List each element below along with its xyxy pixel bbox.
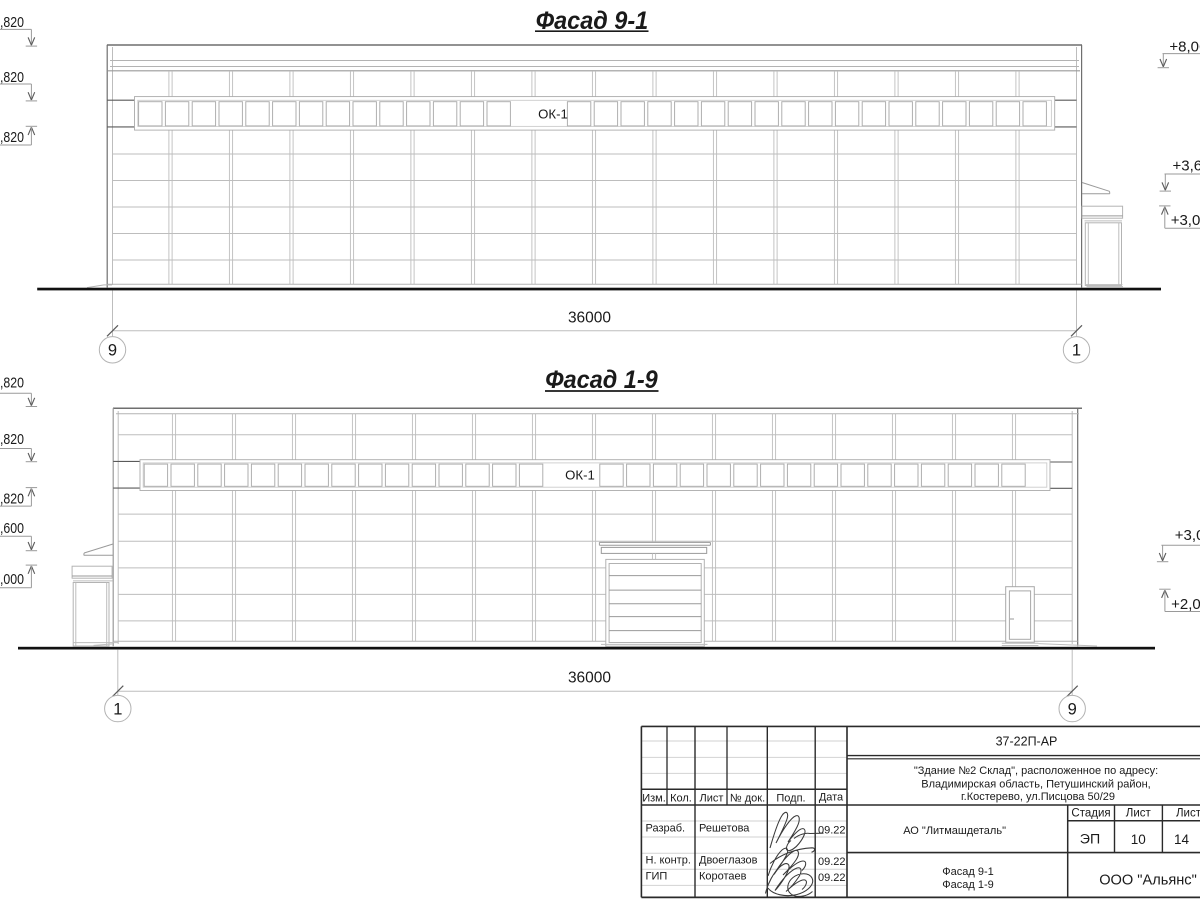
svg-text:Коротаев: Коротаев	[699, 870, 747, 882]
svg-text:Изм.: Изм.	[642, 793, 666, 805]
svg-text:"Здание №2 Склад", расположенн: "Здание №2 Склад", расположенное по адре…	[914, 765, 1158, 777]
svg-text:ОК-1: ОК-1	[565, 468, 595, 483]
svg-text:ГИП: ГИП	[646, 870, 668, 882]
svg-text:,820: ,820	[0, 375, 24, 392]
svg-text:ОК-1: ОК-1	[538, 106, 568, 121]
svg-text:Листов: Листов	[1176, 808, 1200, 820]
svg-text:Фасад 9-1: Фасад 9-1	[942, 866, 993, 878]
svg-text:Н. контр.: Н. контр.	[646, 855, 691, 867]
svg-text:ЭП: ЭП	[1080, 831, 1100, 847]
svg-text:Дата: Дата	[819, 792, 844, 804]
svg-text:37-22П-АР: 37-22П-АР	[996, 734, 1058, 748]
svg-text:Разраб.: Разраб.	[646, 823, 686, 835]
svg-text:36000: 36000	[568, 310, 611, 327]
svg-text:9: 9	[1068, 700, 1077, 718]
svg-text:Стадия: Стадия	[1071, 808, 1110, 820]
svg-text:Фасад 1-9: Фасад 1-9	[545, 366, 658, 394]
svg-text:9: 9	[108, 342, 117, 360]
svg-text:Подп.: Подп.	[776, 793, 805, 805]
svg-text:09.22: 09.22	[818, 872, 846, 884]
svg-text:Двоеглазов: Двоеглазов	[699, 855, 758, 867]
svg-text:Кол.: Кол.	[670, 793, 692, 805]
svg-text:№ док.: № док.	[730, 793, 765, 805]
svg-text:Решетова: Решетова	[699, 823, 750, 835]
svg-text:,820: ,820	[0, 14, 24, 31]
svg-text:Владимирская область, Петушинс: Владимирская область, Петушинский район,	[921, 779, 1150, 791]
svg-text:1: 1	[113, 700, 122, 718]
svg-text:Фасад 1-9: Фасад 1-9	[942, 879, 993, 891]
svg-text:Лист: Лист	[1126, 808, 1152, 820]
svg-text:14: 14	[1174, 832, 1190, 847]
svg-text:36000: 36000	[568, 669, 611, 686]
svg-text:,820: ,820	[0, 69, 24, 86]
svg-text:09.22: 09.22	[818, 825, 846, 837]
svg-text:09.22: 09.22	[818, 856, 846, 868]
svg-text:+2,00: +2,00	[1171, 596, 1200, 613]
svg-text:+3,0: +3,0	[1175, 527, 1200, 544]
svg-text:10: 10	[1131, 832, 1146, 847]
svg-text:,820: ,820	[0, 491, 24, 508]
svg-text:,600: ,600	[0, 520, 24, 537]
svg-text:+3,00: +3,00	[1171, 212, 1200, 229]
svg-text:,000: ,000	[0, 571, 24, 588]
svg-text:1: 1	[1072, 342, 1081, 360]
svg-text:АО "Литмашдеталь": АО "Литмашдеталь"	[903, 825, 1006, 837]
svg-text:,820: ,820	[0, 129, 24, 146]
svg-text:,820: ,820	[0, 431, 24, 448]
svg-text:+3,60: +3,60	[1173, 158, 1200, 175]
svg-text:ООО "Альянс": ООО "Альянс"	[1099, 872, 1197, 888]
svg-text:Лист: Лист	[700, 793, 724, 805]
svg-text:г.Костерево, ул.Писцова 50/29: г.Костерево, ул.Писцова 50/29	[961, 791, 1115, 803]
